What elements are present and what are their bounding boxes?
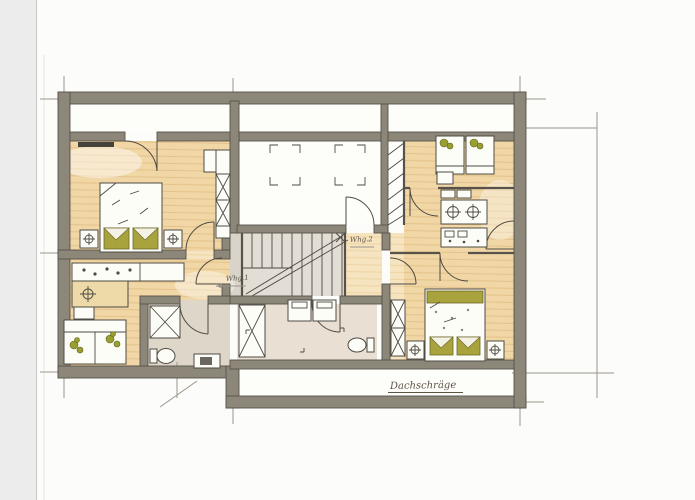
- bath-counter: [441, 228, 487, 247]
- wardrobe-right: [391, 300, 405, 356]
- roof-slope-strip-top: [70, 104, 514, 132]
- kitchen-counter: [72, 263, 184, 281]
- nightstand: [80, 230, 98, 248]
- washing-machine-icon: [288, 300, 311, 321]
- pillow: [430, 337, 453, 355]
- double-vanity: [441, 200, 487, 224]
- svg-text:Dachschräge: Dachschräge: [389, 380, 457, 392]
- nightstand: [487, 341, 504, 359]
- pillow: [457, 337, 480, 355]
- floor-stairwell: [242, 233, 345, 296]
- shower: [150, 306, 180, 338]
- single-bed: [436, 136, 464, 174]
- mirror-cabinet: [441, 190, 455, 198]
- side-table: [437, 172, 453, 184]
- svg-text:Whg.2: Whg.2: [350, 235, 374, 244]
- sideboard: [78, 142, 114, 147]
- single-bed: [466, 136, 494, 174]
- washbasin: [194, 354, 220, 368]
- toilet-icon: [150, 349, 175, 364]
- nightstand: [407, 341, 424, 359]
- roof-slope-label: Dachschräge: [388, 380, 463, 393]
- pillow: [104, 228, 129, 249]
- toilet-icon: [348, 338, 374, 352]
- pillow: [133, 228, 158, 249]
- nightstand: [164, 230, 182, 248]
- floor-plan-drawing: Whg.1 Whg.2 Dachschräge: [0, 0, 695, 500]
- svg-text:Whg.1: Whg.1: [226, 274, 249, 283]
- double-bed-left: [100, 183, 162, 252]
- sofa: [64, 320, 126, 364]
- floor-room-top-middle: [239, 141, 381, 225]
- roof-slope-strip-bottom: [240, 369, 514, 396]
- mirror-cabinet: [457, 190, 471, 198]
- double-bed-right: [425, 289, 485, 361]
- closet: [239, 305, 265, 357]
- washing-machine-icon: [313, 300, 336, 321]
